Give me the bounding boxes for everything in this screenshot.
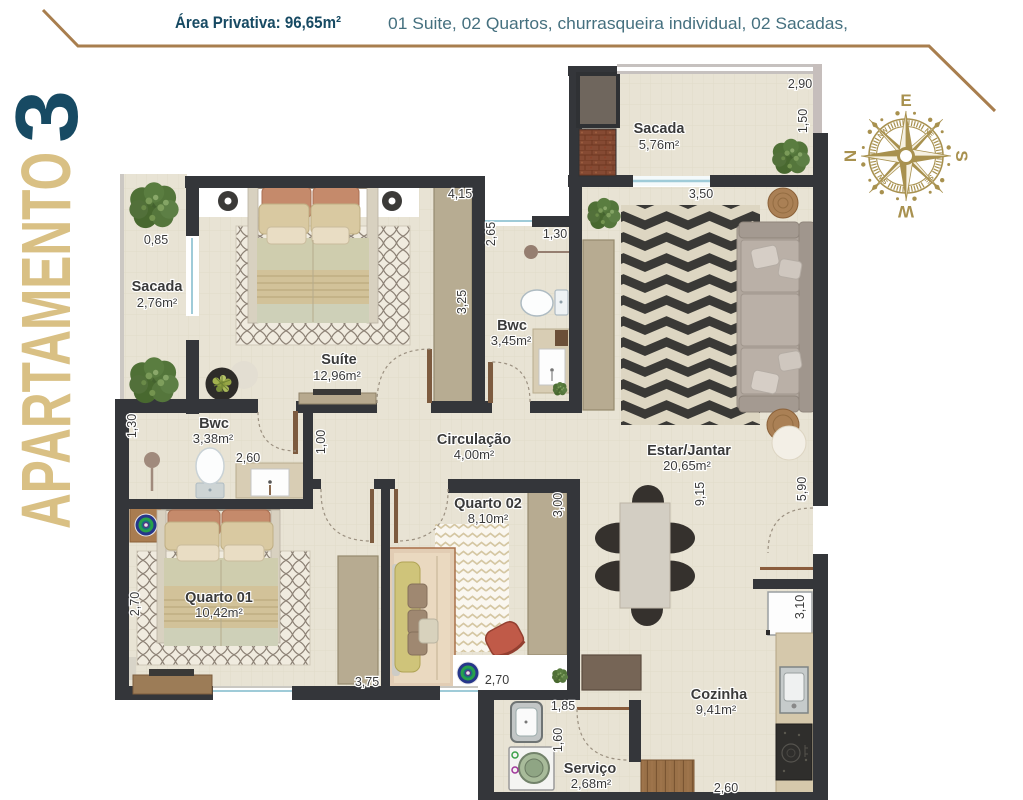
svg-text:9,41m²: 9,41m² xyxy=(696,702,737,717)
svg-text:2,68m²: 2,68m² xyxy=(571,776,612,791)
svg-text:Quarto 02: Quarto 02 xyxy=(454,496,522,512)
svg-text:3,75: 3,75 xyxy=(355,675,379,689)
svg-text:1,60: 1,60 xyxy=(551,728,565,752)
svg-text:3,45m²: 3,45m² xyxy=(491,333,532,348)
svg-text:Cozinha: Cozinha xyxy=(691,687,748,703)
svg-text:Circulação: Circulação xyxy=(437,432,511,448)
svg-text:Bwc: Bwc xyxy=(497,318,527,334)
svg-text:3,25: 3,25 xyxy=(455,290,469,314)
svg-text:1,50: 1,50 xyxy=(796,109,810,133)
svg-text:Estar/Jantar: Estar/Jantar xyxy=(647,443,731,459)
svg-text:5,90: 5,90 xyxy=(795,477,809,501)
svg-text:2,90: 2,90 xyxy=(788,77,812,91)
svg-text:3,50: 3,50 xyxy=(689,187,713,201)
svg-text:Bwc: Bwc xyxy=(199,416,229,432)
svg-text:2,70: 2,70 xyxy=(485,673,509,687)
svg-text:2,76m²: 2,76m² xyxy=(137,295,178,310)
svg-text:12,96m²: 12,96m² xyxy=(313,368,361,383)
svg-text:3,00: 3,00 xyxy=(551,493,565,517)
svg-text:20,65m²: 20,65m² xyxy=(663,458,711,473)
svg-text:N: N xyxy=(841,150,860,162)
svg-text:Quarto 01: Quarto 01 xyxy=(185,590,253,606)
svg-text:8,10m²: 8,10m² xyxy=(468,511,509,526)
svg-text:9,15: 9,15 xyxy=(693,482,707,506)
svg-text:0,85: 0,85 xyxy=(144,233,168,247)
svg-text:Serviço: Serviço xyxy=(564,761,617,777)
svg-text:2,70: 2,70 xyxy=(128,592,142,616)
svg-text:E: E xyxy=(900,91,911,110)
svg-text:1,30: 1,30 xyxy=(125,414,139,438)
svg-text:3,10: 3,10 xyxy=(793,595,807,619)
svg-text:4,15: 4,15 xyxy=(448,187,472,201)
svg-text:Sacada: Sacada xyxy=(634,121,686,137)
svg-text:5,76m²: 5,76m² xyxy=(639,137,680,152)
svg-text:1,85: 1,85 xyxy=(551,699,575,713)
svg-text:W: W xyxy=(897,202,914,221)
svg-text:S: S xyxy=(952,150,971,161)
svg-text:01 Suite, 02 Quartos, churrasq: 01 Suite, 02 Quartos, churrasqueira indi… xyxy=(388,14,848,33)
svg-text:2,65: 2,65 xyxy=(484,222,498,246)
svg-text:Sacada: Sacada xyxy=(132,279,184,295)
svg-text:Área Privativa: 96,65m²: Área Privativa: 96,65m² xyxy=(175,13,341,32)
svg-text:APARTAMENTO: APARTAMENTO xyxy=(7,152,85,529)
svg-text:1,30: 1,30 xyxy=(543,227,567,241)
svg-text:10,42m²: 10,42m² xyxy=(195,605,243,620)
svg-text:3,38m²: 3,38m² xyxy=(193,431,234,446)
svg-text:2,60: 2,60 xyxy=(714,781,738,795)
svg-text:1,00: 1,00 xyxy=(314,430,328,454)
svg-text:2,60: 2,60 xyxy=(236,451,260,465)
svg-text:4,00m²: 4,00m² xyxy=(454,447,495,462)
svg-text:Suíte: Suíte xyxy=(321,352,356,368)
svg-text:3: 3 xyxy=(0,90,96,143)
